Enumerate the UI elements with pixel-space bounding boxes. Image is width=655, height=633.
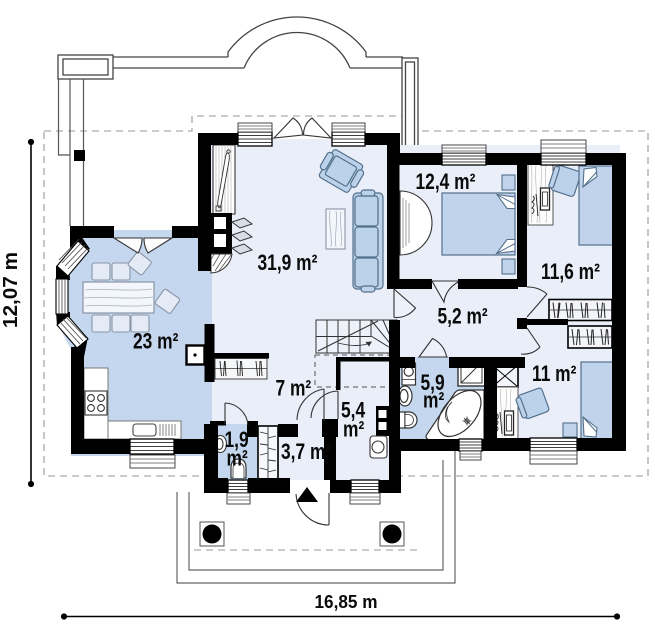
svg-text:3,7 m²: 3,7 m² [281, 440, 332, 464]
svg-text:31,9 m²: 31,9 m² [258, 251, 318, 275]
svg-text:16,85 m: 16,85 m [315, 592, 378, 612]
svg-text:12,07 m: 12,07 m [0, 252, 22, 328]
svg-text:m²: m² [227, 447, 249, 471]
svg-text:12,4 m²: 12,4 m² [416, 170, 476, 194]
svg-text:11 m²: 11 m² [532, 362, 577, 386]
svg-text:23 m²: 23 m² [133, 330, 179, 354]
svg-text:m²: m² [423, 389, 445, 413]
svg-text:11,6 m²: 11,6 m² [541, 260, 600, 284]
svg-text:7 m²: 7 m² [276, 377, 312, 401]
svg-text:m²: m² [343, 418, 365, 442]
svg-text:5,2 m²: 5,2 m² [438, 305, 489, 329]
